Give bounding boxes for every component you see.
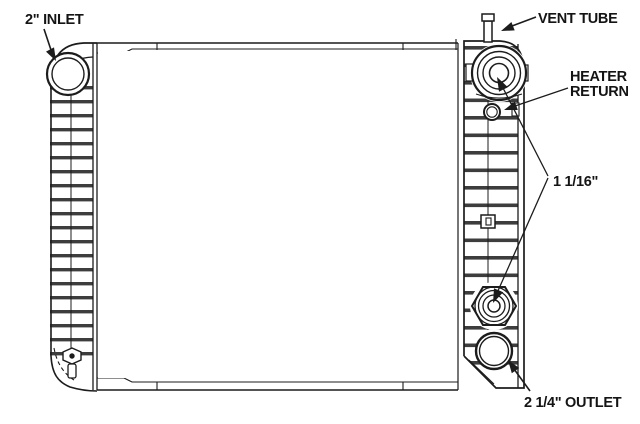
inlet-label: 2" INLET	[25, 12, 84, 28]
fitting-size-label: 1 1/16"	[553, 174, 598, 190]
radiator-diagram: 2" INLET VENT TUBE HEATER RETURN 1 1/16"…	[0, 0, 640, 424]
mounting-bracket	[481, 215, 495, 228]
vent-tube	[482, 14, 494, 42]
left-tank	[47, 43, 97, 391]
outlet-label: 2 1/4" OUTLET	[524, 395, 622, 411]
radiator-core	[98, 51, 457, 378]
inlet-port	[47, 53, 89, 95]
heater-return-label-line1: HEATER	[570, 69, 628, 85]
heater-return-label-line2: RETURN	[570, 84, 629, 100]
radiator-diagram-page: 2" INLET VENT TUBE HEATER RETURN 1 1/16"…	[0, 0, 640, 424]
vent-tube-label: VENT TUBE	[538, 11, 618, 27]
outlet-port	[476, 333, 512, 369]
right-tank	[458, 14, 528, 390]
